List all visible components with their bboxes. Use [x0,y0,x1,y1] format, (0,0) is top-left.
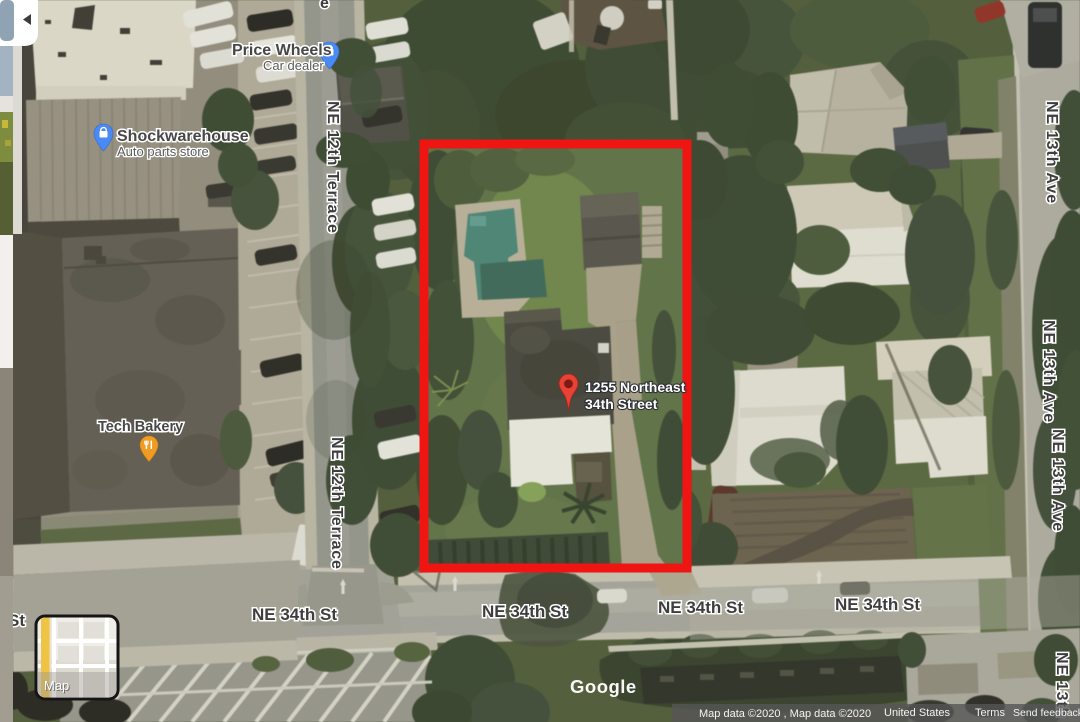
svg-text:NE 13th Ave: NE 13th Ave [1043,101,1060,204]
svg-text:NE 12th Terrace: NE 12th Terrace [324,101,341,234]
svg-text:NE 12th Terrace: NE 12th Terrace [328,437,345,570]
svg-text:Map data ©2020 , Map data ©202: Map data ©2020 , Map data ©2020 [699,708,871,720]
svg-text:34th Street: 34th Street [585,396,658,412]
svg-text:Shockwarehouse: Shockwarehouse [117,128,249,145]
svg-text:1255 Northeast: 1255 Northeast [585,379,686,395]
svg-text:Map: Map [44,678,69,693]
svg-text:Auto parts store: Auto parts store [117,144,209,159]
svg-text:United States: United States [884,707,951,719]
svg-text:Terms: Terms [975,707,1005,719]
svg-text:Google: Google [570,676,637,697]
svg-text:e: e [320,0,329,12]
svg-text:NE 34th St: NE 34th St [482,602,567,621]
svg-text:Tech Bakery: Tech Bakery [98,419,183,435]
svg-text:Send feedback: Send feedback [1013,707,1080,719]
svg-text:NE 34th St: NE 34th St [252,605,337,624]
svg-text:NE 34th St: NE 34th St [658,598,743,617]
svg-text:NE 13th Ave: NE 13th Ave [1049,429,1066,532]
svg-text:NE 34th St: NE 34th St [835,595,920,614]
svg-text:Car dealer: Car dealer [263,58,324,73]
svg-text:NE 13th Ave: NE 13th Ave [1040,320,1057,423]
svg-text:Price Wheels: Price Wheels [232,42,332,59]
